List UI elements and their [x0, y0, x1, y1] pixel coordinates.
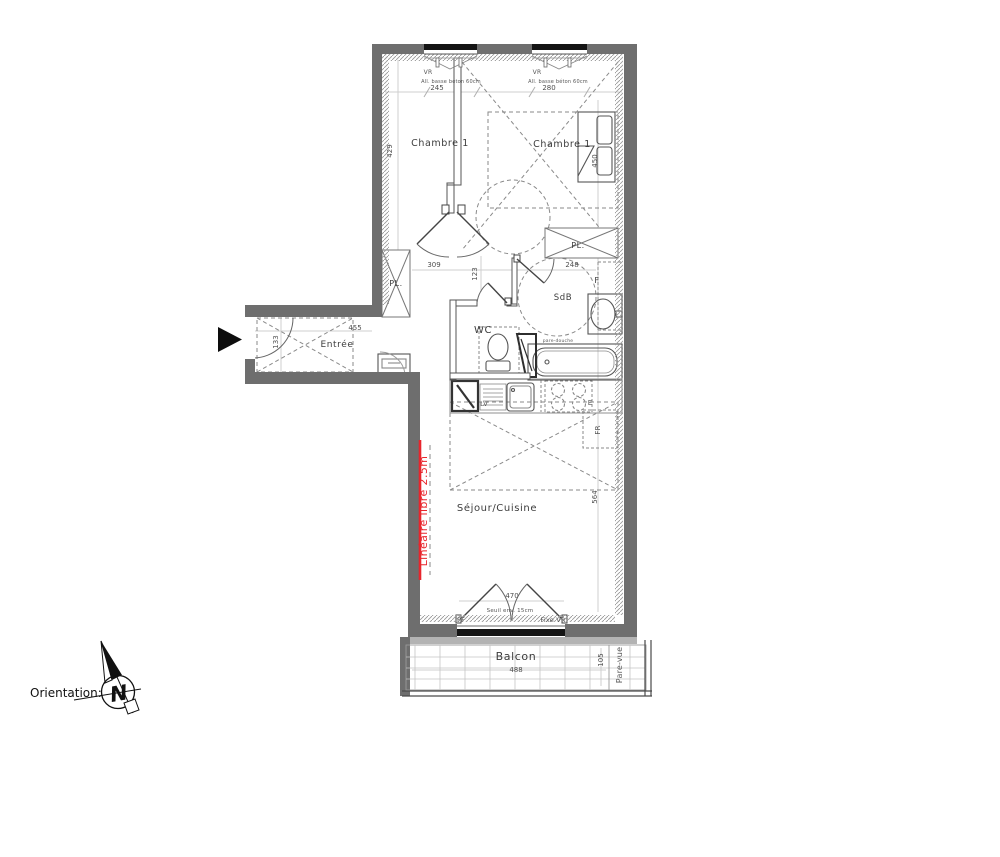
closet-label-left: PL. [389, 279, 403, 288]
room-label-wc: WC [474, 325, 492, 336]
room-label-sejour: Séjour/Cuisine [457, 502, 537, 514]
technical-panel [378, 352, 410, 374]
dim-bay: 470 [505, 592, 518, 600]
room-label-chambre1: Chambre 1 [411, 138, 469, 149]
room-label-chambre2: Chambre 1 [533, 139, 591, 150]
dim-balcon-depth: 105 [597, 653, 605, 666]
cooktop [552, 384, 586, 411]
pf-label: PF [457, 616, 465, 624]
kitchen-counter [450, 379, 622, 413]
appliance-label-e: E [588, 399, 593, 407]
plan-texts: Chambre 1 Chambre 1 245 280 VR VR All. b… [30, 69, 624, 707]
toilet [486, 334, 510, 371]
shower-screen [517, 334, 536, 377]
dim-entree-height: 133 [272, 335, 280, 348]
compass [74, 641, 141, 714]
dim-entree-width: 455 [348, 324, 361, 332]
dim-hall-b: 123 [471, 267, 479, 280]
door-chambre2 [457, 212, 489, 257]
window-label-vr-right: VR [533, 69, 542, 76]
dim-chambre1-height: 429 [386, 144, 394, 157]
room-label-entree: Entrée [320, 339, 353, 350]
corner-cabinet [452, 381, 478, 411]
lineaire-libre-label: Linéaire libre 2.5m [417, 456, 430, 567]
allege-label-left: All. basse béton 60cm [421, 78, 481, 85]
dim-sdb-width: 248 [565, 261, 578, 269]
closet-label-right: PL. [571, 241, 585, 250]
window-label-f: F [594, 276, 599, 285]
fixtures [378, 112, 622, 413]
dim-chambre2-width: 280 [542, 84, 555, 92]
pare-vue-label: Pare-vue [615, 647, 624, 683]
dim-bed: 450 [591, 154, 599, 167]
room-label-sdb: SdB [554, 293, 572, 303]
dim-sejour-height: 564 [591, 490, 599, 504]
compass-north-letter: N [108, 680, 130, 707]
appliance-label-fr: FR [594, 425, 602, 434]
appliance-label-lv: LV [480, 400, 488, 408]
orientation-label: Orientation: [30, 686, 102, 700]
seuil-label: Seuil env. 15cm [487, 608, 534, 614]
dim-hall: 309 [427, 261, 440, 269]
dim-balcon-width: 488 [509, 666, 522, 674]
floor-plan-page: Chambre 1 Chambre 1 245 280 VR VR All. b… [0, 0, 1000, 857]
kitchen-sink [507, 383, 534, 411]
allege-label-right: All. basse béton 60cm [528, 78, 588, 85]
entrance-arrow [218, 327, 242, 352]
bathtub [528, 344, 622, 380]
door-chambre1 [417, 212, 449, 257]
fixe-vr-label: Fixe VR [540, 616, 565, 624]
pare-douche-label: pare-douche [543, 338, 574, 344]
floor-plan-drawing: Chambre 1 Chambre 1 245 280 VR VR All. b… [0, 0, 1000, 857]
dim-chambre1-width: 245 [430, 84, 443, 92]
room-label-balcon: Balcon [496, 650, 537, 663]
window-label-vr-left: VR [424, 69, 433, 76]
